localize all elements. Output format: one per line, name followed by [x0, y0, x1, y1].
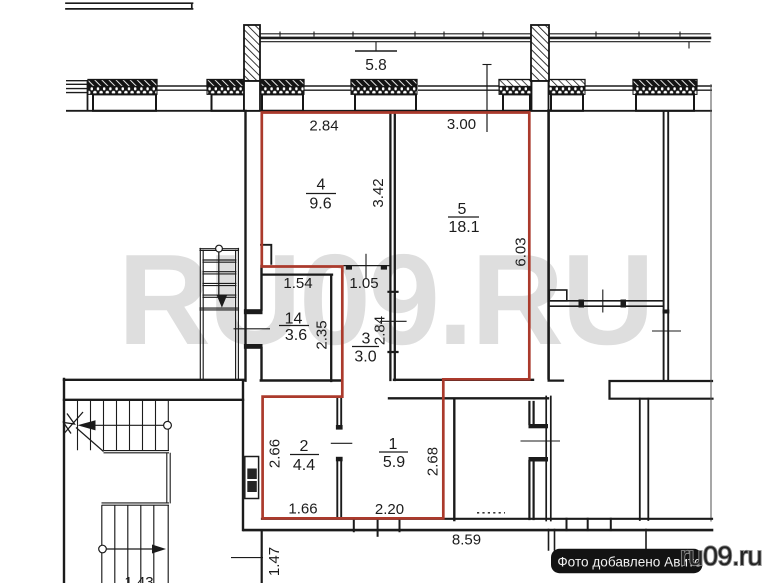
svg-text:3.42: 3.42 — [370, 178, 387, 207]
svg-text:1.47: 1.47 — [266, 547, 283, 576]
svg-text:4: 4 — [317, 177, 326, 194]
svg-text:2.84: 2.84 — [372, 316, 389, 345]
svg-text:1.43: 1.43 — [124, 574, 153, 583]
svg-text:1: 1 — [389, 436, 398, 453]
svg-text:5.8: 5.8 — [365, 57, 387, 74]
svg-text:6.03: 6.03 — [513, 237, 530, 266]
svg-text:18.1: 18.1 — [448, 219, 479, 236]
svg-text:2.68: 2.68 — [425, 447, 442, 476]
svg-text:3: 3 — [362, 331, 371, 348]
svg-text:5: 5 — [458, 201, 467, 218]
svg-text:4.4: 4.4 — [293, 457, 315, 474]
svg-text:3.6: 3.6 — [285, 327, 307, 344]
svg-text:1.05: 1.05 — [349, 275, 378, 292]
svg-text:8.59: 8.59 — [452, 532, 481, 549]
svg-text:9.6: 9.6 — [309, 196, 331, 213]
svg-text:2.84: 2.84 — [309, 118, 338, 135]
svg-text:2.20: 2.20 — [375, 501, 404, 518]
svg-text:2.35: 2.35 — [314, 320, 331, 349]
svg-text:ru09.ru: ru09.ru — [680, 541, 762, 571]
svg-text:3.0: 3.0 — [354, 349, 376, 366]
svg-text:5.9: 5.9 — [383, 454, 405, 471]
svg-text:1.54: 1.54 — [283, 275, 312, 292]
svg-text:2.66: 2.66 — [267, 439, 284, 468]
svg-text:1.66: 1.66 — [288, 501, 317, 518]
svg-text:2: 2 — [300, 438, 309, 455]
svg-text:3.00: 3.00 — [447, 116, 476, 133]
